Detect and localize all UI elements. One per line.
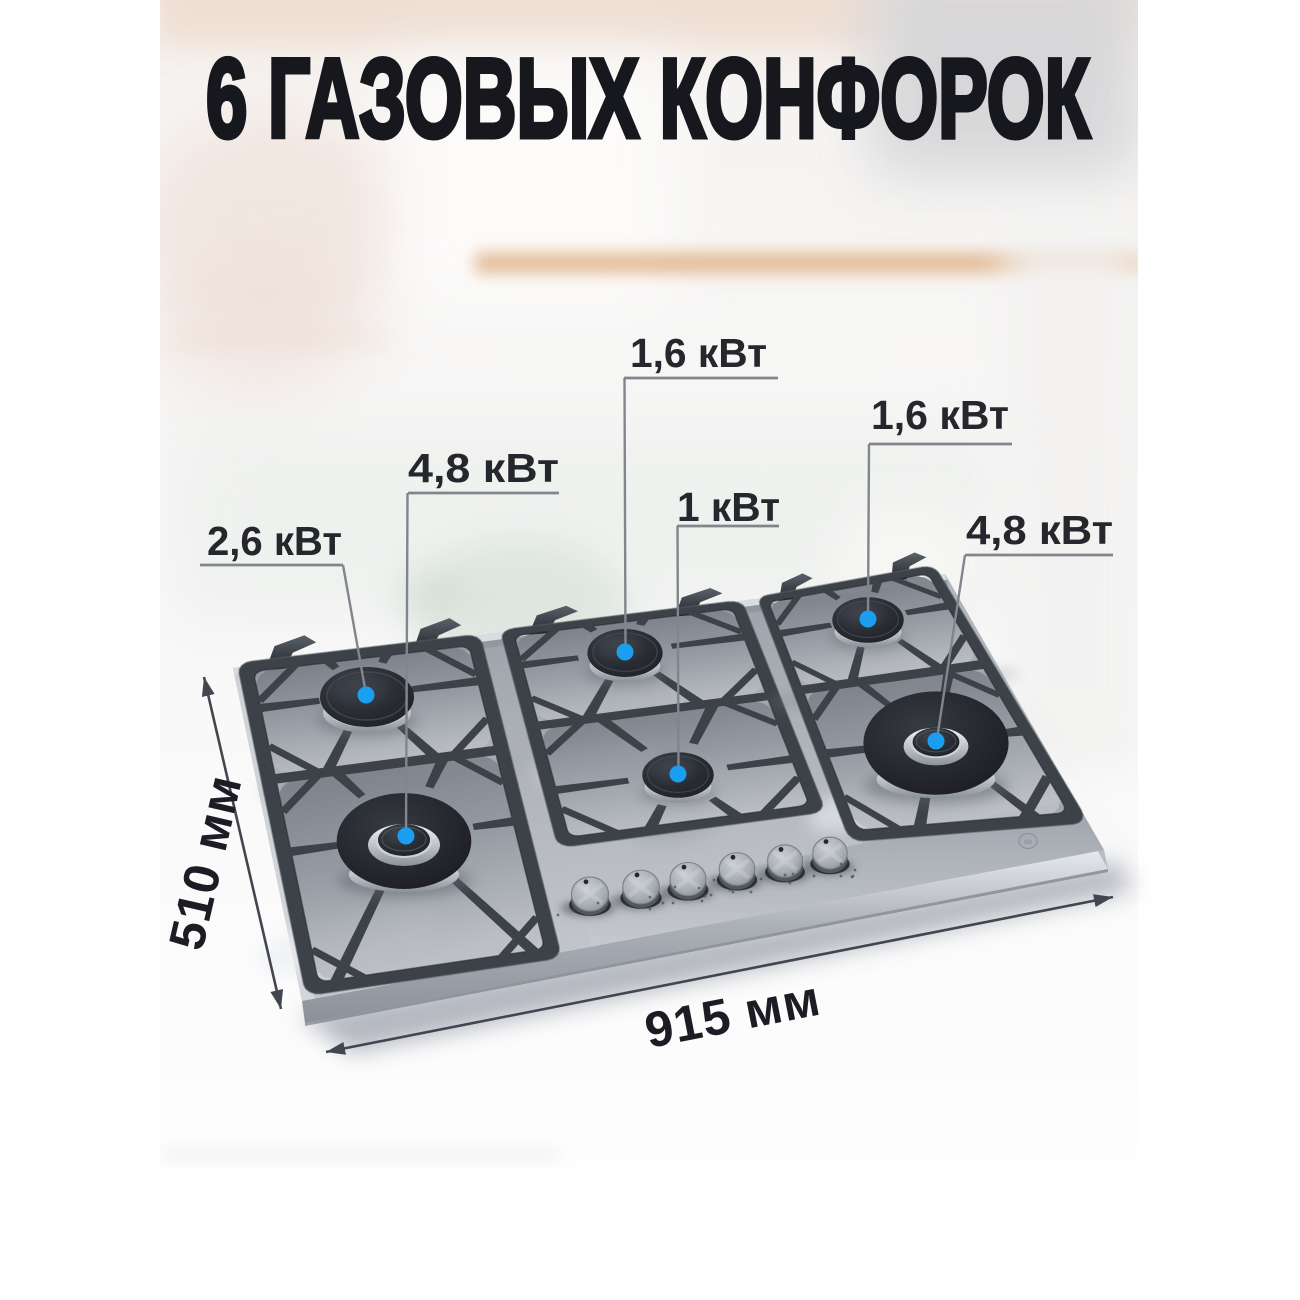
- svg-text:1,6 кВт: 1,6 кВт: [871, 392, 1009, 438]
- svg-text:1,6 кВт: 1,6 кВт: [630, 330, 767, 376]
- svg-text:4,8 кВт: 4,8 кВт: [408, 445, 559, 491]
- svg-text:4,8 кВт: 4,8 кВт: [966, 507, 1113, 553]
- svg-text:1 кВт: 1 кВт: [677, 484, 780, 530]
- svg-text:2,6 кВт: 2,6 кВт: [207, 518, 342, 564]
- svg-text:oli: oli: [1024, 839, 1032, 846]
- svg-text:6 ГАЗОВЫХ КОНФОРОК: 6 ГАЗОВЫХ КОНФОРОК: [206, 36, 1090, 161]
